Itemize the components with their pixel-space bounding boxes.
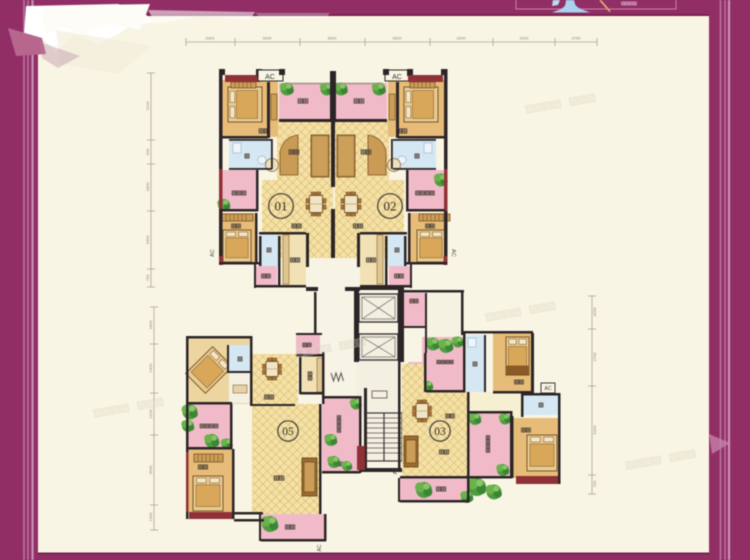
- svg-text:900: 900: [145, 148, 150, 155]
- svg-text:3400: 3400: [263, 36, 273, 41]
- svg-text:AC: AC: [317, 544, 323, 551]
- svg-text:AC: AC: [545, 386, 552, 392]
- svg-text:1800: 1800: [145, 182, 150, 192]
- svg-text:AC: AC: [393, 467, 399, 474]
- svg-text:02: 02: [384, 199, 397, 214]
- svg-text:AC: AC: [265, 74, 275, 81]
- svg-text:05: 05: [282, 426, 294, 438]
- svg-text:4200: 4200: [592, 307, 597, 317]
- svg-text:3750: 3750: [572, 36, 582, 41]
- svg-text:AC: AC: [392, 74, 402, 81]
- svg-text:3500: 3500: [148, 465, 153, 475]
- svg-text:4250: 4250: [520, 36, 530, 41]
- svg-text:2100: 2100: [145, 101, 150, 111]
- svg-text:1800: 1800: [148, 320, 153, 330]
- svg-text:AC: AC: [450, 249, 456, 257]
- svg-text:03: 03: [434, 426, 446, 438]
- svg-text:3400: 3400: [457, 36, 467, 41]
- svg-text:3600: 3600: [393, 36, 403, 41]
- svg-text:2400: 2400: [148, 363, 153, 373]
- svg-text:5300: 5300: [592, 425, 597, 435]
- svg-text:1300: 1300: [148, 512, 153, 522]
- svg-text:3300: 3300: [206, 36, 216, 41]
- svg-text:2100: 2100: [148, 409, 153, 419]
- svg-text:750: 750: [592, 480, 597, 487]
- svg-text:750: 750: [145, 274, 150, 281]
- svg-text:01: 01: [275, 199, 288, 214]
- svg-text:3300: 3300: [145, 235, 150, 245]
- svg-text:3600: 3600: [328, 36, 338, 41]
- svg-text:AC: AC: [210, 249, 216, 257]
- svg-text:2700: 2700: [592, 352, 597, 362]
